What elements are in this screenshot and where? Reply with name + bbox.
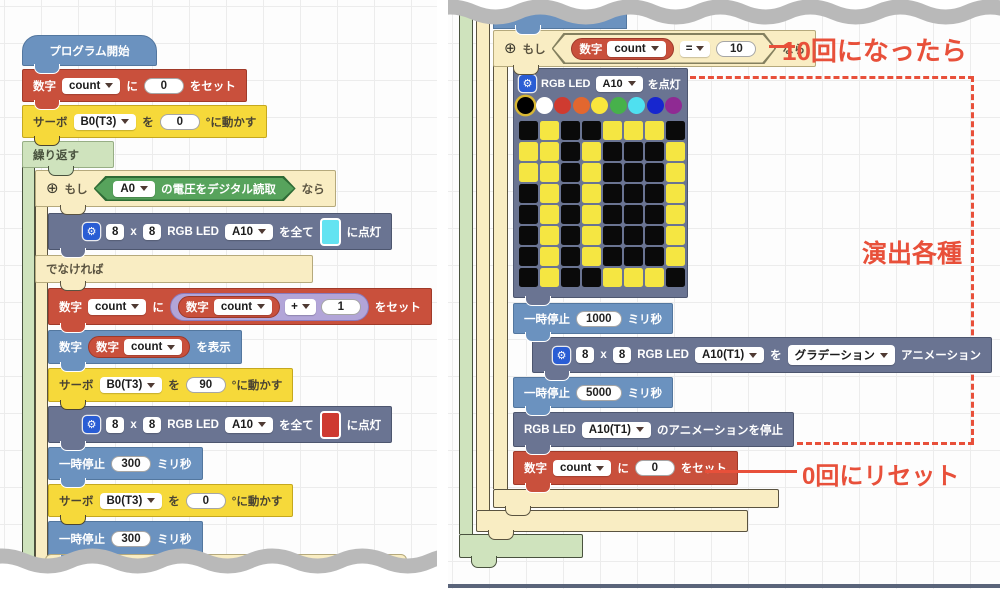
led-cell[interactable] (624, 226, 643, 245)
led-cell[interactable] (603, 205, 622, 224)
led-matrix-block[interactable]: ⚙RGB LEDA10を点灯 (513, 68, 688, 298)
condition-hexagon[interactable]: 数字count=10 (552, 33, 777, 65)
annotation-reset: 0回にリセット (802, 456, 959, 491)
led-block-header: ⚙RGB LEDA10を点灯 (514, 69, 687, 95)
led-cell[interactable] (666, 268, 685, 287)
led-cell[interactable] (540, 163, 559, 182)
value-field[interactable]: 0 (160, 114, 200, 130)
led-cell[interactable] (582, 163, 601, 182)
led-cell[interactable] (519, 247, 538, 266)
servo-move-90[interactable]: サーボB0(T3)を90°に動かす (48, 368, 293, 402)
dropdown-B0(T3)[interactable]: B0(T3) (100, 377, 163, 393)
servo-move-90-notch (60, 400, 86, 410)
led-cell[interactable] (624, 205, 643, 224)
dropdown-count[interactable]: count (607, 41, 665, 57)
servo-move-0[interactable]: サーボB0(T3)を0°に動かす (22, 105, 267, 138)
variable-capsule[interactable]: 数字count (88, 336, 190, 358)
led-cell[interactable] (666, 184, 685, 203)
block-label: に点灯 (347, 417, 382, 433)
if-header[interactable]: ⊕もしA0の電圧をデジタル読取なら (35, 170, 336, 207)
value-field[interactable]: 300 (111, 531, 151, 547)
dropdown-A10[interactable]: A10 (225, 224, 273, 240)
palette-color[interactable] (665, 97, 682, 114)
block-label: サーボ (59, 377, 94, 393)
outer-if-wall[interactable] (476, 10, 490, 510)
dropdown-value: count (614, 43, 645, 55)
led-cell[interactable] (519, 268, 538, 287)
torn-block-fragment-blue (493, 5, 627, 29)
block-label: 一時停止 (59, 531, 105, 547)
set-count-plus-1[interactable]: 数字countに数字count+1をセット (48, 288, 432, 325)
dropdown-value: count (131, 341, 162, 353)
dropdown-A10(T1)[interactable]: A10(T1) (695, 347, 764, 363)
operator-value: + (291, 301, 298, 313)
led-cell[interactable] (519, 142, 538, 161)
outer-if-footer-notch (488, 530, 514, 540)
dropdown-value: A10 (232, 419, 253, 431)
variable-capsule[interactable]: 数字count (571, 38, 673, 60)
dropdown-value: A10 (232, 226, 253, 238)
led-all-on-red-notch (60, 441, 86, 451)
block-label: 数字 (96, 339, 119, 355)
led-cell[interactable] (624, 184, 643, 203)
led-cell[interactable] (540, 268, 559, 287)
operator-dropdown[interactable]: + (285, 299, 316, 315)
color-swatch[interactable] (320, 218, 341, 246)
value-field[interactable]: 0 (144, 78, 184, 94)
led-cell[interactable] (666, 247, 685, 266)
dropdown-arrow-icon (258, 229, 266, 234)
palette-color[interactable] (536, 97, 553, 114)
dropdown-arrow-icon (105, 83, 113, 88)
dropdown-arrow-icon (131, 304, 139, 309)
led-cell[interactable] (582, 184, 601, 203)
block-label: を全て (279, 224, 314, 240)
servo-move-0-b-notch (60, 515, 86, 525)
dropdown-arrow-icon (147, 383, 155, 388)
dropdown-arrow-icon (636, 427, 644, 432)
set-count-plus-1-notch (60, 323, 86, 333)
number-field[interactable]: 8 (106, 417, 124, 433)
dropdown-value: B0(T3) (81, 116, 117, 128)
program-start[interactable]: プログラム開始 (22, 35, 157, 66)
led-cell[interactable] (645, 163, 664, 182)
reset-count-0[interactable]: 数字countに0をセット (513, 451, 738, 485)
led-cell[interactable] (603, 226, 622, 245)
dropdown-value: count (221, 301, 252, 313)
block-label: ミリ秒 (628, 311, 663, 327)
if-header-notch (60, 205, 86, 215)
torn-oval-fragment (259, 559, 295, 576)
block-label: RGB LED (524, 424, 576, 436)
block-label: を (168, 493, 180, 509)
block-label: 数字 (579, 41, 602, 57)
set-count-0[interactable]: 数字countに0をセット (22, 69, 247, 102)
dropdown-arrow-icon (628, 81, 636, 86)
led-cell[interactable] (582, 226, 601, 245)
repeat-footer[interactable] (459, 534, 583, 558)
servo-move-0-notch (34, 136, 60, 146)
led-cell[interactable] (582, 247, 601, 266)
block-label: 数字 (59, 339, 82, 355)
block-label: RGB LED (167, 419, 219, 431)
block-label: x (130, 226, 136, 238)
dropdown-value: B0(T3) (107, 495, 143, 507)
block-label: °に動かす (206, 114, 257, 130)
palette-color[interactable] (517, 97, 534, 114)
dropdown-arrow-icon (140, 186, 148, 191)
led-cell[interactable] (540, 184, 559, 203)
math-capsule[interactable]: 数字count+1 (170, 293, 369, 321)
led-cell[interactable] (603, 247, 622, 266)
block-label: に (617, 460, 629, 476)
led-cell[interactable] (603, 268, 622, 287)
repeat-wall[interactable] (459, 4, 473, 534)
led-cell[interactable] (624, 247, 643, 266)
led-cell[interactable] (645, 184, 664, 203)
led-all-on-cyan[interactable]: ⚙8x8RGB LEDA10を全てに点灯 (48, 213, 392, 250)
block-label: を (168, 377, 180, 393)
led-animation[interactable]: ⚙8x8RGB LEDA10(T1)をグラデーションアニメーション (532, 337, 992, 373)
dropdown-A10(T1)[interactable]: A10(T1) (582, 422, 651, 438)
servo-move-0-b[interactable]: サーボB0(T3)を0°に動かす (48, 484, 293, 517)
block-label: に (126, 78, 138, 94)
led-cell[interactable] (624, 142, 643, 161)
block-label: ミリ秒 (628, 385, 663, 401)
condition-hexagon-inner: 数字count=10 (553, 35, 774, 63)
block-label: サーボ (59, 493, 94, 509)
number-field[interactable]: 8 (106, 224, 124, 240)
block-label: なら (302, 181, 325, 197)
block-label: に点灯 (347, 224, 382, 240)
block-label: RGB LED (541, 78, 591, 90)
block-label: サーボ (33, 114, 68, 130)
block-label: ミリ秒 (157, 456, 192, 472)
pause-300-b-notch (60, 555, 86, 565)
led-cell[interactable] (666, 226, 685, 245)
led-cell[interactable] (561, 142, 580, 161)
annotation-pointer-line-reset (705, 470, 797, 473)
annotation-when-10: 10回になったら (782, 31, 967, 68)
number-field[interactable]: 8 (143, 224, 161, 240)
dropdown-value: count (95, 301, 126, 313)
led-cell[interactable] (666, 205, 685, 224)
annotation-effects: 演出各種 (862, 234, 962, 270)
else-bar-notch (60, 281, 86, 291)
pause-5000[interactable]: 一時停止5000ミリ秒 (513, 377, 673, 408)
dropdown-B0(T3)[interactable]: B0(T3) (74, 114, 137, 130)
led-cell[interactable] (582, 142, 601, 161)
dropdown-arrow-icon (257, 304, 265, 309)
led-cell[interactable] (624, 121, 643, 140)
expand-icon[interactable]: ⊕ (504, 41, 517, 56)
led-cell[interactable] (519, 121, 538, 140)
variable-capsule[interactable]: 数字count (178, 296, 280, 318)
torn-red-fragment (151, 563, 195, 575)
dropdown-count[interactable]: count (124, 339, 182, 355)
repeat-wall[interactable] (22, 167, 35, 572)
led-cell[interactable] (603, 142, 622, 161)
dropdown-arrow-icon (880, 353, 888, 358)
led-cell[interactable] (540, 121, 559, 140)
if-count-10-wall[interactable] (493, 64, 508, 489)
dropdown-A10[interactable]: A10 (596, 76, 643, 92)
block-label: RGB LED (167, 226, 219, 238)
block-label: もし (65, 181, 88, 197)
led-matrix-block-notch (525, 296, 551, 306)
value-field[interactable]: 90 (186, 377, 226, 393)
repeat-header-notch (48, 166, 74, 176)
torn-block-fragment (45, 554, 407, 586)
condition-hexagon-inner: A0の電圧をデジタル読取 (95, 178, 293, 200)
block-label: 数字 (186, 299, 209, 315)
block-label: のアニメーションを停止 (657, 422, 783, 438)
dropdown-グラデーション[interactable]: グラデーション (788, 345, 895, 365)
led-cell[interactable] (624, 163, 643, 182)
dropdown-arrow-icon (121, 119, 129, 124)
program-start-notch (34, 64, 60, 74)
led-cell[interactable] (645, 268, 664, 287)
led-cell[interactable] (519, 163, 538, 182)
pause-300-b[interactable]: 一時停止300ミリ秒 (48, 521, 203, 557)
block-label: 一時停止 (524, 385, 570, 401)
dropdown-value: A10 (603, 78, 623, 90)
dropdown-arrow-icon (302, 304, 310, 309)
block-label: 数字 (33, 78, 56, 94)
block-label: 繰り返す (33, 147, 79, 163)
annotation-dashed-box-right (971, 76, 974, 444)
led-color-palette (514, 95, 687, 116)
block-label: でなければ (46, 261, 104, 277)
reset-count-0-notch (525, 483, 551, 493)
gear-icon[interactable]: ⚙ (83, 416, 100, 433)
dropdown-value: A10(T1) (702, 349, 744, 361)
block-label: をセット (681, 460, 727, 476)
palette-color[interactable] (573, 97, 590, 114)
display-count-notch (60, 362, 86, 372)
block-label: x (130, 419, 136, 431)
block-label: をセット (375, 299, 421, 315)
dropdown-count[interactable]: count (553, 460, 611, 476)
panel-bottom-edge (448, 584, 1000, 588)
dropdown-arrow-icon (651, 46, 659, 51)
led-all-on-cyan-notch (60, 248, 86, 258)
dropdown-value: A10(T1) (589, 424, 631, 436)
led-cell[interactable] (561, 268, 580, 287)
led-cell[interactable] (561, 184, 580, 203)
annotation-dashed-box-bottom (779, 442, 974, 445)
led-cell[interactable] (645, 247, 664, 266)
dropdown-value: A0 (120, 183, 135, 195)
pause-300-a-notch (60, 478, 86, 488)
led-cell[interactable] (645, 121, 664, 140)
dropdown-arrow-icon (167, 345, 175, 350)
value-field[interactable]: 0 (635, 460, 675, 476)
blockly-workspace: プログラム開始数字countに0をセットサーボB0(T3)を0°に動かす繰り返す… (0, 0, 1000, 589)
set-count-0-notch (34, 100, 60, 110)
dropdown-value: B0(T3) (107, 379, 143, 391)
led-cell[interactable] (519, 205, 538, 224)
led-cell[interactable] (540, 142, 559, 161)
number-field[interactable]: 8 (143, 417, 161, 433)
block-label: を表示 (196, 339, 231, 355)
left-panel: プログラム開始数字countに0をセットサーボB0(T3)を0°に動かす繰り返す… (0, 0, 437, 589)
block-label: プログラム開始 (49, 43, 129, 59)
led-cell[interactable] (519, 226, 538, 245)
annotation-dashed-box-top (690, 76, 974, 79)
led-cell[interactable] (561, 121, 580, 140)
block-label: をセット (190, 78, 236, 94)
dropdown-arrow-icon (749, 353, 757, 358)
block-label: もし (523, 41, 546, 57)
led-cell[interactable] (645, 142, 664, 161)
led-cell[interactable] (561, 163, 580, 182)
led-cell[interactable] (540, 247, 559, 266)
operator-value: = (686, 43, 693, 55)
repeat-footer-notch (471, 556, 497, 568)
block-label: RGB LED (637, 349, 689, 361)
dropdown-arrow-icon (696, 46, 704, 51)
dropdown-count[interactable]: count (214, 299, 272, 315)
led-cell[interactable] (561, 247, 580, 266)
led-cell[interactable] (603, 121, 622, 140)
dropdown-arrow-icon (596, 466, 604, 471)
right-panel: ⊕もし数字count=10なら⚙RGB LEDA10を点灯一時停止1000ミリ秒… (448, 0, 1000, 589)
dropdown-count[interactable]: count (62, 78, 120, 94)
led-cell[interactable] (540, 205, 559, 224)
palette-color[interactable] (628, 97, 645, 114)
value-field[interactable]: 0 (186, 493, 226, 509)
block-label: の電圧をデジタル読取 (161, 181, 276, 197)
led-cell[interactable] (561, 205, 580, 224)
number-field[interactable]: 8 (613, 347, 631, 363)
led-cell[interactable] (582, 121, 601, 140)
value-field[interactable]: 1000 (576, 311, 622, 327)
operator-dropdown[interactable]: = (680, 41, 711, 57)
dropdown-value: count (560, 462, 591, 474)
if-count-10-footer-notch (505, 506, 531, 516)
led-cell[interactable] (561, 226, 580, 245)
block-label: x (600, 349, 606, 361)
block-label: 数字 (59, 299, 82, 315)
dropdown-value: グラデーション (795, 347, 875, 363)
led-cell[interactable] (519, 184, 538, 203)
led-cell[interactable] (666, 142, 685, 161)
block-label: °に動かす (232, 493, 283, 509)
display-count[interactable]: 数字数字countを表示 (48, 330, 242, 364)
led-cell[interactable] (582, 268, 601, 287)
value-field[interactable]: 10 (716, 41, 756, 57)
led-cell[interactable] (540, 226, 559, 245)
pause-1000[interactable]: 一時停止1000ミリ秒 (513, 303, 673, 334)
dropdown-arrow-icon (258, 422, 266, 427)
dropdown-A0[interactable]: A0 (113, 181, 155, 197)
block-label: を (142, 114, 154, 130)
block-label: 一時停止 (59, 456, 105, 472)
palette-color[interactable] (610, 97, 627, 114)
led-cell[interactable] (645, 226, 664, 245)
block-label: を (770, 347, 782, 363)
block-label: 数字 (524, 460, 547, 476)
block-label: °に動かす (232, 377, 283, 393)
value-field[interactable]: 300 (111, 456, 151, 472)
stop-animation[interactable]: RGB LEDA10(T1)のアニメーションを停止 (513, 412, 794, 447)
block-label: ミリ秒 (157, 531, 192, 547)
pause-5000-notch (525, 406, 551, 416)
led-pixel-grid (514, 116, 687, 294)
led-animation-notch (544, 371, 570, 381)
led-cell[interactable] (666, 121, 685, 140)
gear-icon[interactable]: ⚙ (83, 223, 100, 240)
led-cell[interactable] (666, 163, 685, 182)
led-cell[interactable] (603, 184, 622, 203)
expand-icon[interactable]: ⊕ (46, 181, 59, 196)
led-all-on-red[interactable]: ⚙8x8RGB LEDA10を全てに点灯 (48, 406, 392, 443)
dropdown-value: count (69, 80, 100, 92)
block-label: に (152, 299, 164, 315)
gear-icon[interactable]: ⚙ (553, 347, 570, 364)
led-cell[interactable] (582, 205, 601, 224)
stop-animation-notch (525, 445, 551, 455)
gear-icon[interactable]: ⚙ (519, 75, 536, 92)
led-cell[interactable] (645, 205, 664, 224)
if-count-10-header-notch (513, 65, 539, 75)
block-label: を全て (279, 417, 314, 433)
dropdown-arrow-icon (147, 498, 155, 503)
torn-block-fragment-blue-notch (515, 25, 541, 35)
palette-color[interactable] (591, 97, 608, 114)
dropdown-B0(T3)[interactable]: B0(T3) (100, 493, 163, 509)
value-field[interactable]: 5000 (576, 385, 622, 401)
condition-hexagon[interactable]: A0の電圧をデジタル読取 (94, 176, 296, 202)
palette-color[interactable] (647, 97, 664, 114)
pause-1000-notch (525, 332, 551, 342)
dropdown-count[interactable]: count (88, 299, 146, 315)
else-bar[interactable]: でなければ (35, 255, 313, 283)
block-label: 一時停止 (524, 311, 570, 327)
number-field[interactable]: 8 (576, 347, 594, 363)
palette-color[interactable] (554, 97, 571, 114)
block-label: アニメーション (901, 347, 981, 363)
led-cell[interactable] (624, 268, 643, 287)
pause-300-a[interactable]: 一時停止300ミリ秒 (48, 447, 203, 480)
value-field[interactable]: 1 (321, 299, 361, 315)
dropdown-A10[interactable]: A10 (225, 417, 273, 433)
led-cell[interactable] (603, 163, 622, 182)
if-count-10-header[interactable]: ⊕もし数字count=10なら (493, 30, 816, 67)
block-label: を点灯 (648, 76, 681, 92)
color-swatch[interactable] (320, 411, 341, 439)
repeat-header[interactable]: 繰り返す (22, 141, 114, 168)
